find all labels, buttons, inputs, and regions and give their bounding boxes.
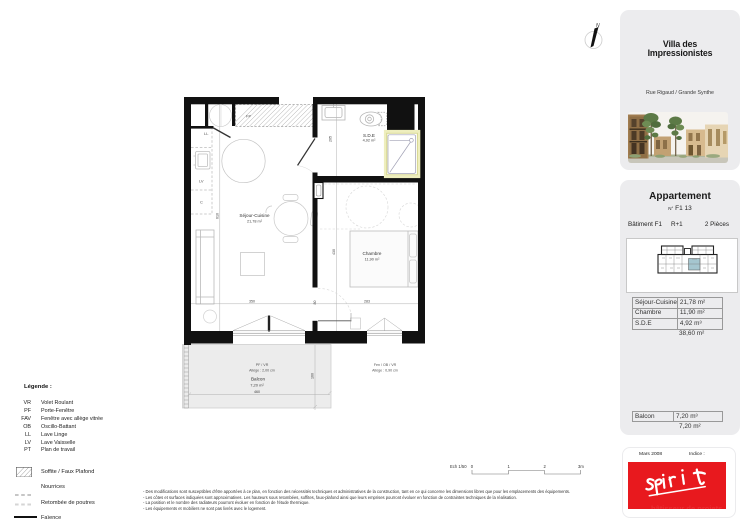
svg-text:Allège : 2,00 cm: Allège : 2,00 cm (249, 369, 275, 373)
svg-text:Fen / OB / VR: Fen / OB / VR (374, 363, 397, 367)
svg-text:LL: LL (204, 131, 209, 136)
svg-text:Ech 1/50: Ech 1/50 (450, 464, 467, 469)
svg-text:160: 160 (311, 373, 315, 379)
svg-text:7,20 m²: 7,20 m² (250, 383, 264, 388)
svg-text:283: 283 (364, 300, 370, 304)
svg-text:460: 460 (254, 390, 260, 394)
svg-text:1: 1 (508, 464, 511, 469)
svg-text:205: 205 (329, 136, 333, 142)
svg-text:LV: LV (199, 179, 204, 184)
svg-text:PF / VR: PF / VR (256, 363, 269, 367)
svg-text:350: 350 (249, 300, 255, 304)
svg-text:0: 0 (471, 464, 474, 469)
svg-text:Chambre: Chambre (363, 251, 382, 256)
svg-text:21,78 m²: 21,78 m² (247, 220, 263, 224)
svg-text:Balcon: Balcon (251, 377, 265, 382)
svg-text:C: C (200, 200, 203, 205)
svg-text:610: 610 (216, 213, 220, 219)
svg-text:11,90 m²: 11,90 m² (365, 258, 380, 262)
svg-text:2: 2 (544, 464, 547, 469)
svg-text:FP: FP (246, 114, 251, 119)
svg-text:S.D.E: S.D.E (363, 133, 375, 138)
svg-text:N: N (596, 23, 600, 29)
svg-text:Allège : 0,90 cm: Allège : 0,90 cm (372, 369, 398, 373)
svg-text:430: 430 (332, 249, 336, 255)
svg-text:4,92 m²: 4,92 m² (363, 139, 377, 143)
svg-text:80: 80 (313, 301, 317, 305)
svg-text:Séjour-Cuisine: Séjour-Cuisine (239, 213, 270, 218)
svg-text:3m: 3m (578, 464, 584, 469)
